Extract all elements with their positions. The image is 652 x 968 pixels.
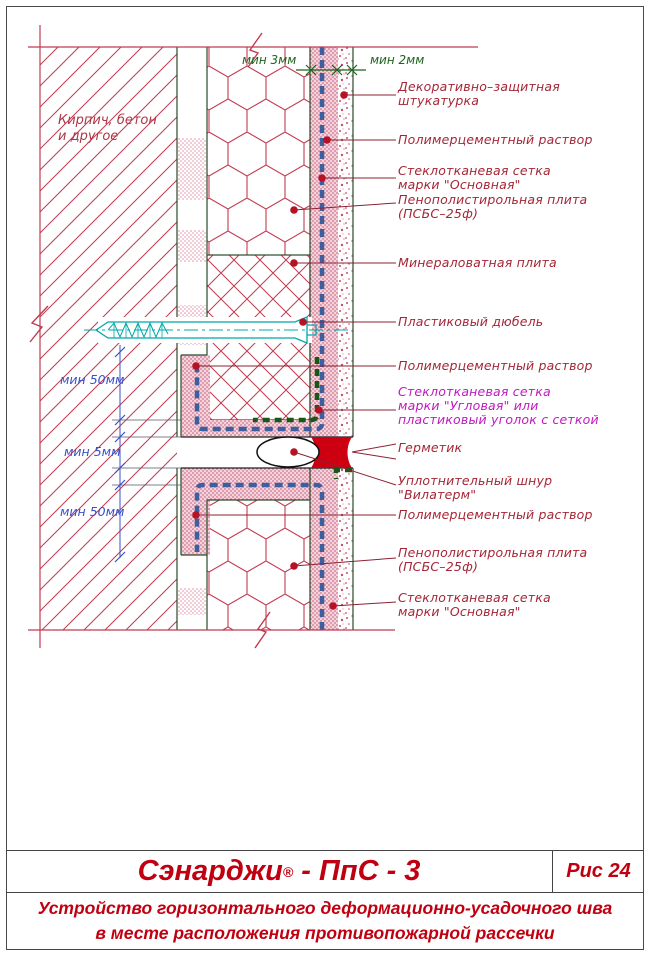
label-foam-plate-1: Пенополистирольная плита (ПСБС–25ф) <box>398 193 638 221</box>
foam-plate-upper <box>207 47 310 255</box>
vilaterm-cord <box>257 437 319 467</box>
label-polymer-mortar-2: Полимерцементный раствор <box>398 359 638 373</box>
label-plastic-dowel: Пластиковый дюбель <box>398 315 638 329</box>
title-row: Сэнарджи® - ПпС - 3 Рис 24 <box>6 850 644 893</box>
dim-left-50mm-upper: мин 50мм <box>60 372 124 387</box>
wall-material-label: Кирпич, бетон и другое <box>58 113 157 145</box>
label-corner-mesh: Стеклотканевая сетка марки "Угловая" или… <box>398 385 638 427</box>
label-mineral-wool: Минераловатная плита <box>398 256 638 270</box>
label-decorative-plaster: Декоративно–защитная штукатурка <box>398 80 638 108</box>
label-mesh-main-1: Стеклотканевая сетка марки "Основная" <box>398 164 638 192</box>
series-name: - ПпС - 3 <box>293 855 420 888</box>
dim-top-2mm: мин 2мм <box>370 53 424 67</box>
product-title: Сэнарджи® - ПпС - 3 <box>6 851 552 892</box>
brand-name: Сэнарджи <box>138 855 283 888</box>
registered-mark: ® <box>283 864 293 880</box>
label-sealant: Герметик <box>398 441 638 455</box>
decorative-plaster-layer <box>338 47 353 630</box>
figure-number: Рис 24 <box>552 851 644 892</box>
caption-block: Устройство горизонтального деформационно… <box>6 893 644 950</box>
label-polymer-mortar-1: Полимерцементный раствор <box>398 133 638 147</box>
label-vilaterm-cord: Уплотнительный шнур "Вилатерм" <box>398 474 638 502</box>
sealant-arrow-leader <box>352 444 396 459</box>
dim-left-5mm: мин 5мм <box>64 444 121 459</box>
dim-left-50mm-lower: мин 50мм <box>60 504 124 519</box>
label-polymer-mortar-3: Полимерцементный раствор <box>398 508 638 522</box>
plastic-dowel <box>84 317 350 343</box>
drawing-sheet: Кирпич, бетон и другое мин 3мм мин 2мм м… <box>0 0 652 968</box>
label-mesh-main-2: Стеклотканевая сетка марки "Основная" <box>398 591 638 619</box>
caption-line-2: в месте расположения противопожарной рас… <box>95 921 554 946</box>
label-foam-plate-2: Пенополистирольная плита (ПСБС–25ф) <box>398 546 638 574</box>
dim-top-3mm: мин 3мм <box>242 53 296 67</box>
caption-line-1: Устройство горизонтального деформационно… <box>38 896 613 921</box>
